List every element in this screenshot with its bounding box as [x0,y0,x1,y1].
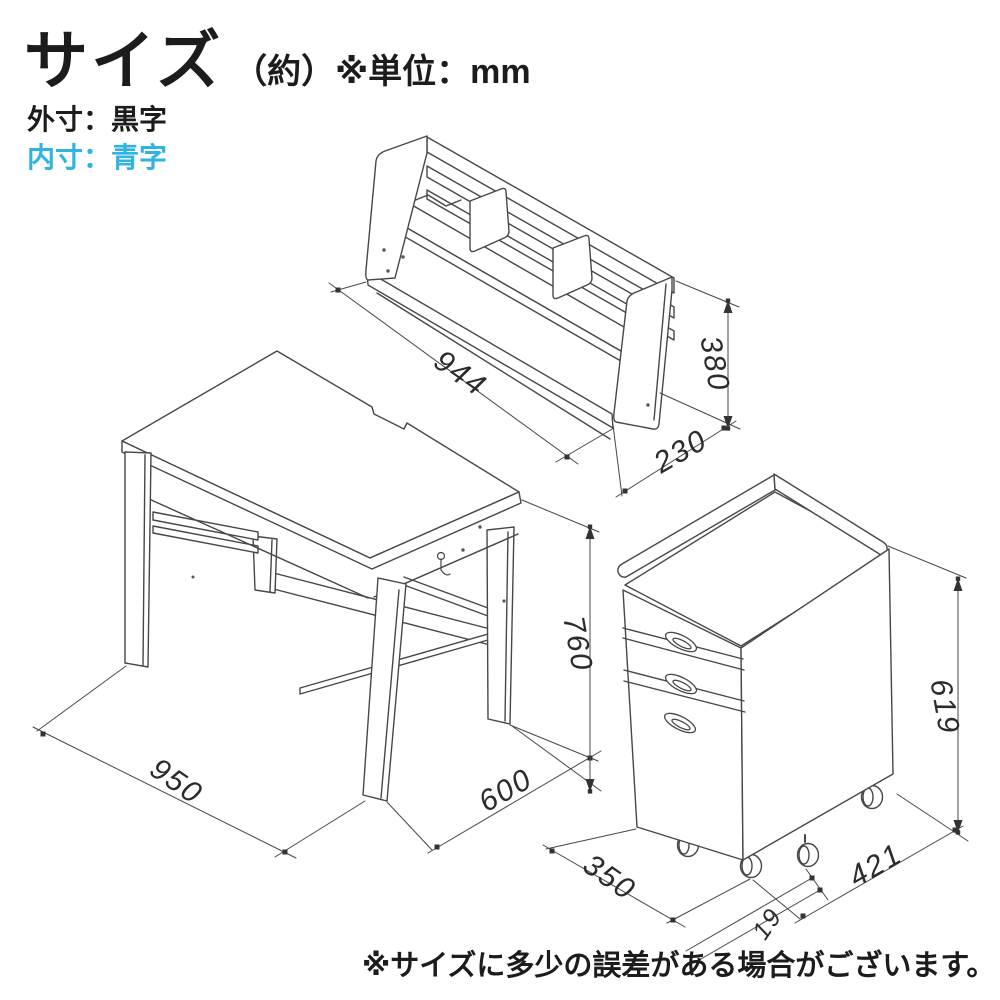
hutch-drawing [366,136,674,439]
furniture-line-drawings [0,0,1000,1000]
desk-drawing [122,351,521,801]
size-diagram-page: サイズ（約）※単位：mm 外寸：黒字 内寸：青字 [0,0,1000,1000]
hutch-right-panel [614,277,672,429]
desk-back-left-leg [253,536,277,593]
size-disclaimer: ※サイズに多少の誤差がある場合がございます。 [362,942,995,984]
desk-back-right-leg [487,527,514,724]
desk-front-left-leg [125,452,151,667]
wagon-drawing [618,474,893,878]
desk-key-hook [438,553,451,575]
